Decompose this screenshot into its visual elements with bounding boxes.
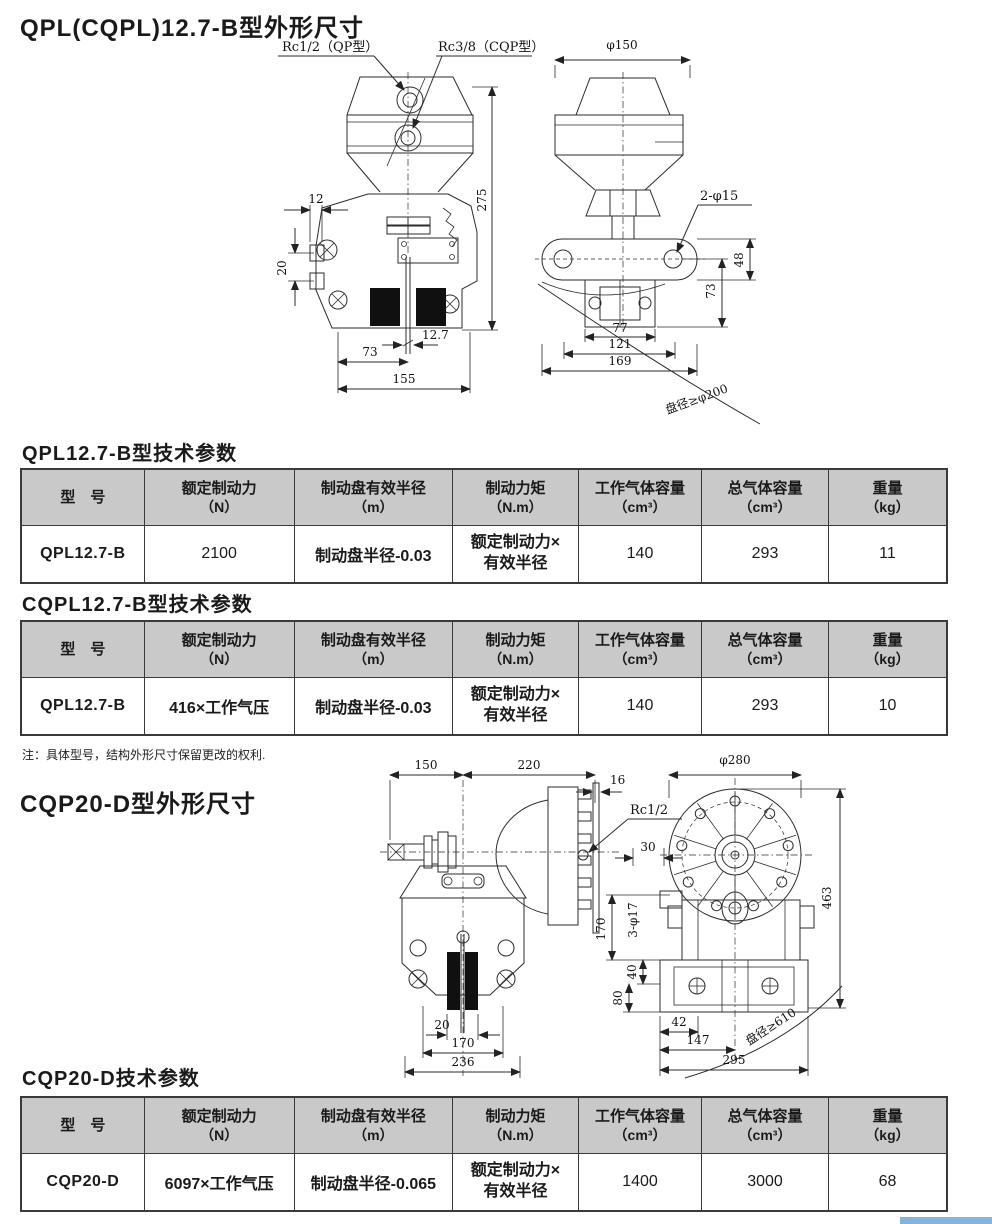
dim-label: 16 (610, 773, 625, 787)
dim-label: 2-φ15 (700, 189, 738, 204)
dim-label: 40 (625, 964, 639, 979)
col-header-weight: 重量（kg） (828, 621, 947, 678)
dim-label: 12 (308, 192, 323, 206)
dim-label: 169 (609, 354, 632, 368)
dim-label: 170 (594, 918, 608, 941)
dim-label: 150 (415, 758, 438, 772)
cell-disc-radius: 制动盘半径-0.03 (294, 526, 452, 584)
cell-torque: 额定制动力× 有效半径 (453, 1154, 579, 1212)
cell-torque: 额定制动力× 有效半径 (453, 678, 579, 736)
col-header-torque: 制动力矩（N.m） (453, 1097, 579, 1154)
dim-label: 73 (362, 345, 377, 359)
cell-total-volume: 3000 (702, 1154, 829, 1212)
cell-disc-radius: 制动盘半径-0.03 (294, 678, 452, 736)
spring-symbol (443, 208, 457, 247)
table3-title: CQP20-D技术参数 (22, 1062, 200, 1091)
cell-weight: 68 (828, 1154, 947, 1212)
brake-pad-left (447, 952, 460, 1010)
dim-label: φ150 (606, 38, 637, 52)
dim-label: 3-φ17 (626, 902, 640, 937)
dim-label: 30 (640, 840, 655, 854)
dim-label: 121 (609, 337, 632, 351)
cell-working-volume: 140 (578, 526, 701, 584)
cell-model: CQP20-D (21, 1154, 144, 1212)
qpl-side-view: φ150 2-φ15 48 (535, 38, 760, 424)
dim-label: 155 (393, 372, 416, 386)
table-header-row: 型 号 额定制动力（N） 制动盘有效半径（m） 制动力矩（N.m） 工作气体容量… (21, 469, 947, 526)
port-label-qp: Rc1/2（QP型） (282, 40, 378, 55)
table-header-row: 型 号 额定制动力（N） 制动盘有效半径（m） 制动力矩（N.m） 工作气体容量… (21, 621, 947, 678)
cell-torque: 额定制动力× 有效半径 (453, 526, 579, 584)
col-header-model: 型 号 (21, 469, 144, 526)
cell-rated-force: 2100 (144, 526, 294, 584)
cell-weight: 11 (828, 526, 947, 584)
dim-label: 12.7 (422, 328, 449, 342)
cell-weight: 10 (828, 678, 947, 736)
dim-label: 77 (612, 321, 627, 335)
dim-label: 220 (518, 758, 541, 772)
section2-title: CQP20-D型外形尺寸 (20, 784, 256, 819)
port-label-rc12: Rc1/2 (630, 803, 668, 818)
col-header-disc-radius: 制动盘有效半径（m） (294, 1097, 452, 1154)
table-cqpl127b-specs: 型 号 额定制动力（N） 制动盘有效半径（m） 制动力矩（N.m） 工作气体容量… (20, 620, 948, 736)
col-header-working-volume: 工作气体容量（cm³） (578, 469, 701, 526)
dim-label: 80 (611, 990, 625, 1005)
cell-disc-radius: 制动盘半径-0.065 (294, 1154, 452, 1212)
cell-rated-force: 416×工作气压 (144, 678, 294, 736)
cell-working-volume: 140 (578, 678, 701, 736)
col-header-rated-force: 额定制动力（N） (144, 469, 294, 526)
col-header-weight: 重量（kg） (828, 1097, 947, 1154)
dim-label: 170 (452, 1036, 475, 1050)
cell-working-volume: 1400 (578, 1154, 701, 1212)
disc-note-label: 盘径≥610 (743, 1004, 799, 1048)
drawing-cqp20d: 150 220 16 Rc1/2 (330, 748, 992, 1080)
col-header-rated-force: 额定制动力（N） (144, 621, 294, 678)
col-header-total-volume: 总气体容量（cm³） (702, 469, 829, 526)
port-label-cqp: Rc3/8（CQP型） (438, 40, 544, 55)
cell-model: QPL12.7-B (21, 526, 144, 584)
table-row: CQP20-D 6097×工作气压 制动盘半径-0.065 额定制动力× 有效半… (21, 1154, 947, 1212)
table-header-row: 型 号 额定制动力（N） 制动盘有效半径（m） 制动力矩（N.m） 工作气体容量… (21, 1097, 947, 1154)
table1-title: QPL12.7-B型技术参数 (22, 437, 237, 466)
cell-total-volume: 293 (702, 526, 829, 584)
col-header-working-volume: 工作气体容量（cm³） (578, 1097, 701, 1154)
col-header-disc-radius: 制动盘有效半径（m） (294, 621, 452, 678)
col-header-model: 型 号 (21, 1097, 144, 1154)
page-accent-bar (900, 1217, 992, 1224)
cell-rated-force: 6097×工作气压 (144, 1154, 294, 1212)
table-cqp20d-specs: 型 号 额定制动力（N） 制动盘有效半径（m） 制动力矩（N.m） 工作气体容量… (20, 1096, 948, 1212)
brake-pad-right (416, 288, 446, 326)
table2-title: CQPL12.7-B型技术参数 (22, 588, 253, 617)
dim-label: 20 (434, 1018, 449, 1032)
cqp-front-view: φ280 (594, 753, 846, 1078)
col-header-rated-force: 额定制动力（N） (144, 1097, 294, 1154)
brake-pad-left (370, 288, 400, 326)
dim-label: 42 (671, 1015, 686, 1029)
dim-label: 275 (475, 189, 489, 212)
footnote: 注：具体型号，结构外形尺寸保留更改的权利. (22, 746, 265, 763)
col-header-working-volume: 工作气体容量（cm³） (578, 621, 701, 678)
dim-label: 295 (723, 1053, 746, 1067)
cell-total-volume: 293 (702, 678, 829, 736)
table-row: QPL12.7-B 416×工作气压 制动盘半径-0.03 额定制动力× 有效半… (21, 678, 947, 736)
col-header-total-volume: 总气体容量（cm³） (702, 1097, 829, 1154)
col-header-disc-radius: 制动盘有效半径（m） (294, 469, 452, 526)
dim-label: 236 (452, 1055, 475, 1069)
drawing-qpl127b: Rc1/2（QP型） Rc3/8（CQP型） (270, 32, 990, 432)
col-header-torque: 制动力矩（N.m） (453, 469, 579, 526)
dim-label: 73 (704, 283, 718, 298)
dim-label: 463 (820, 887, 834, 910)
qpl-front-view: Rc1/2（QP型） Rc3/8（CQP型） (275, 40, 544, 393)
col-header-total-volume: 总气体容量（cm³） (702, 621, 829, 678)
dim-label: 147 (687, 1033, 710, 1047)
col-header-model: 型 号 (21, 621, 144, 678)
dim-label: φ280 (719, 753, 750, 767)
table-row: QPL12.7-B 2100 制动盘半径-0.03 额定制动力× 有效半径 14… (21, 526, 947, 584)
table-qpl127b-specs: 型 号 额定制动力（N） 制动盘有效半径（m） 制动力矩（N.m） 工作气体容量… (20, 468, 948, 584)
brake-pad-right (465, 952, 478, 1010)
dim-label: 20 (275, 260, 289, 275)
cell-model: QPL12.7-B (21, 678, 144, 736)
col-header-torque: 制动力矩（N.m） (453, 621, 579, 678)
col-header-weight: 重量（kg） (828, 469, 947, 526)
dim-label: 48 (732, 252, 746, 267)
